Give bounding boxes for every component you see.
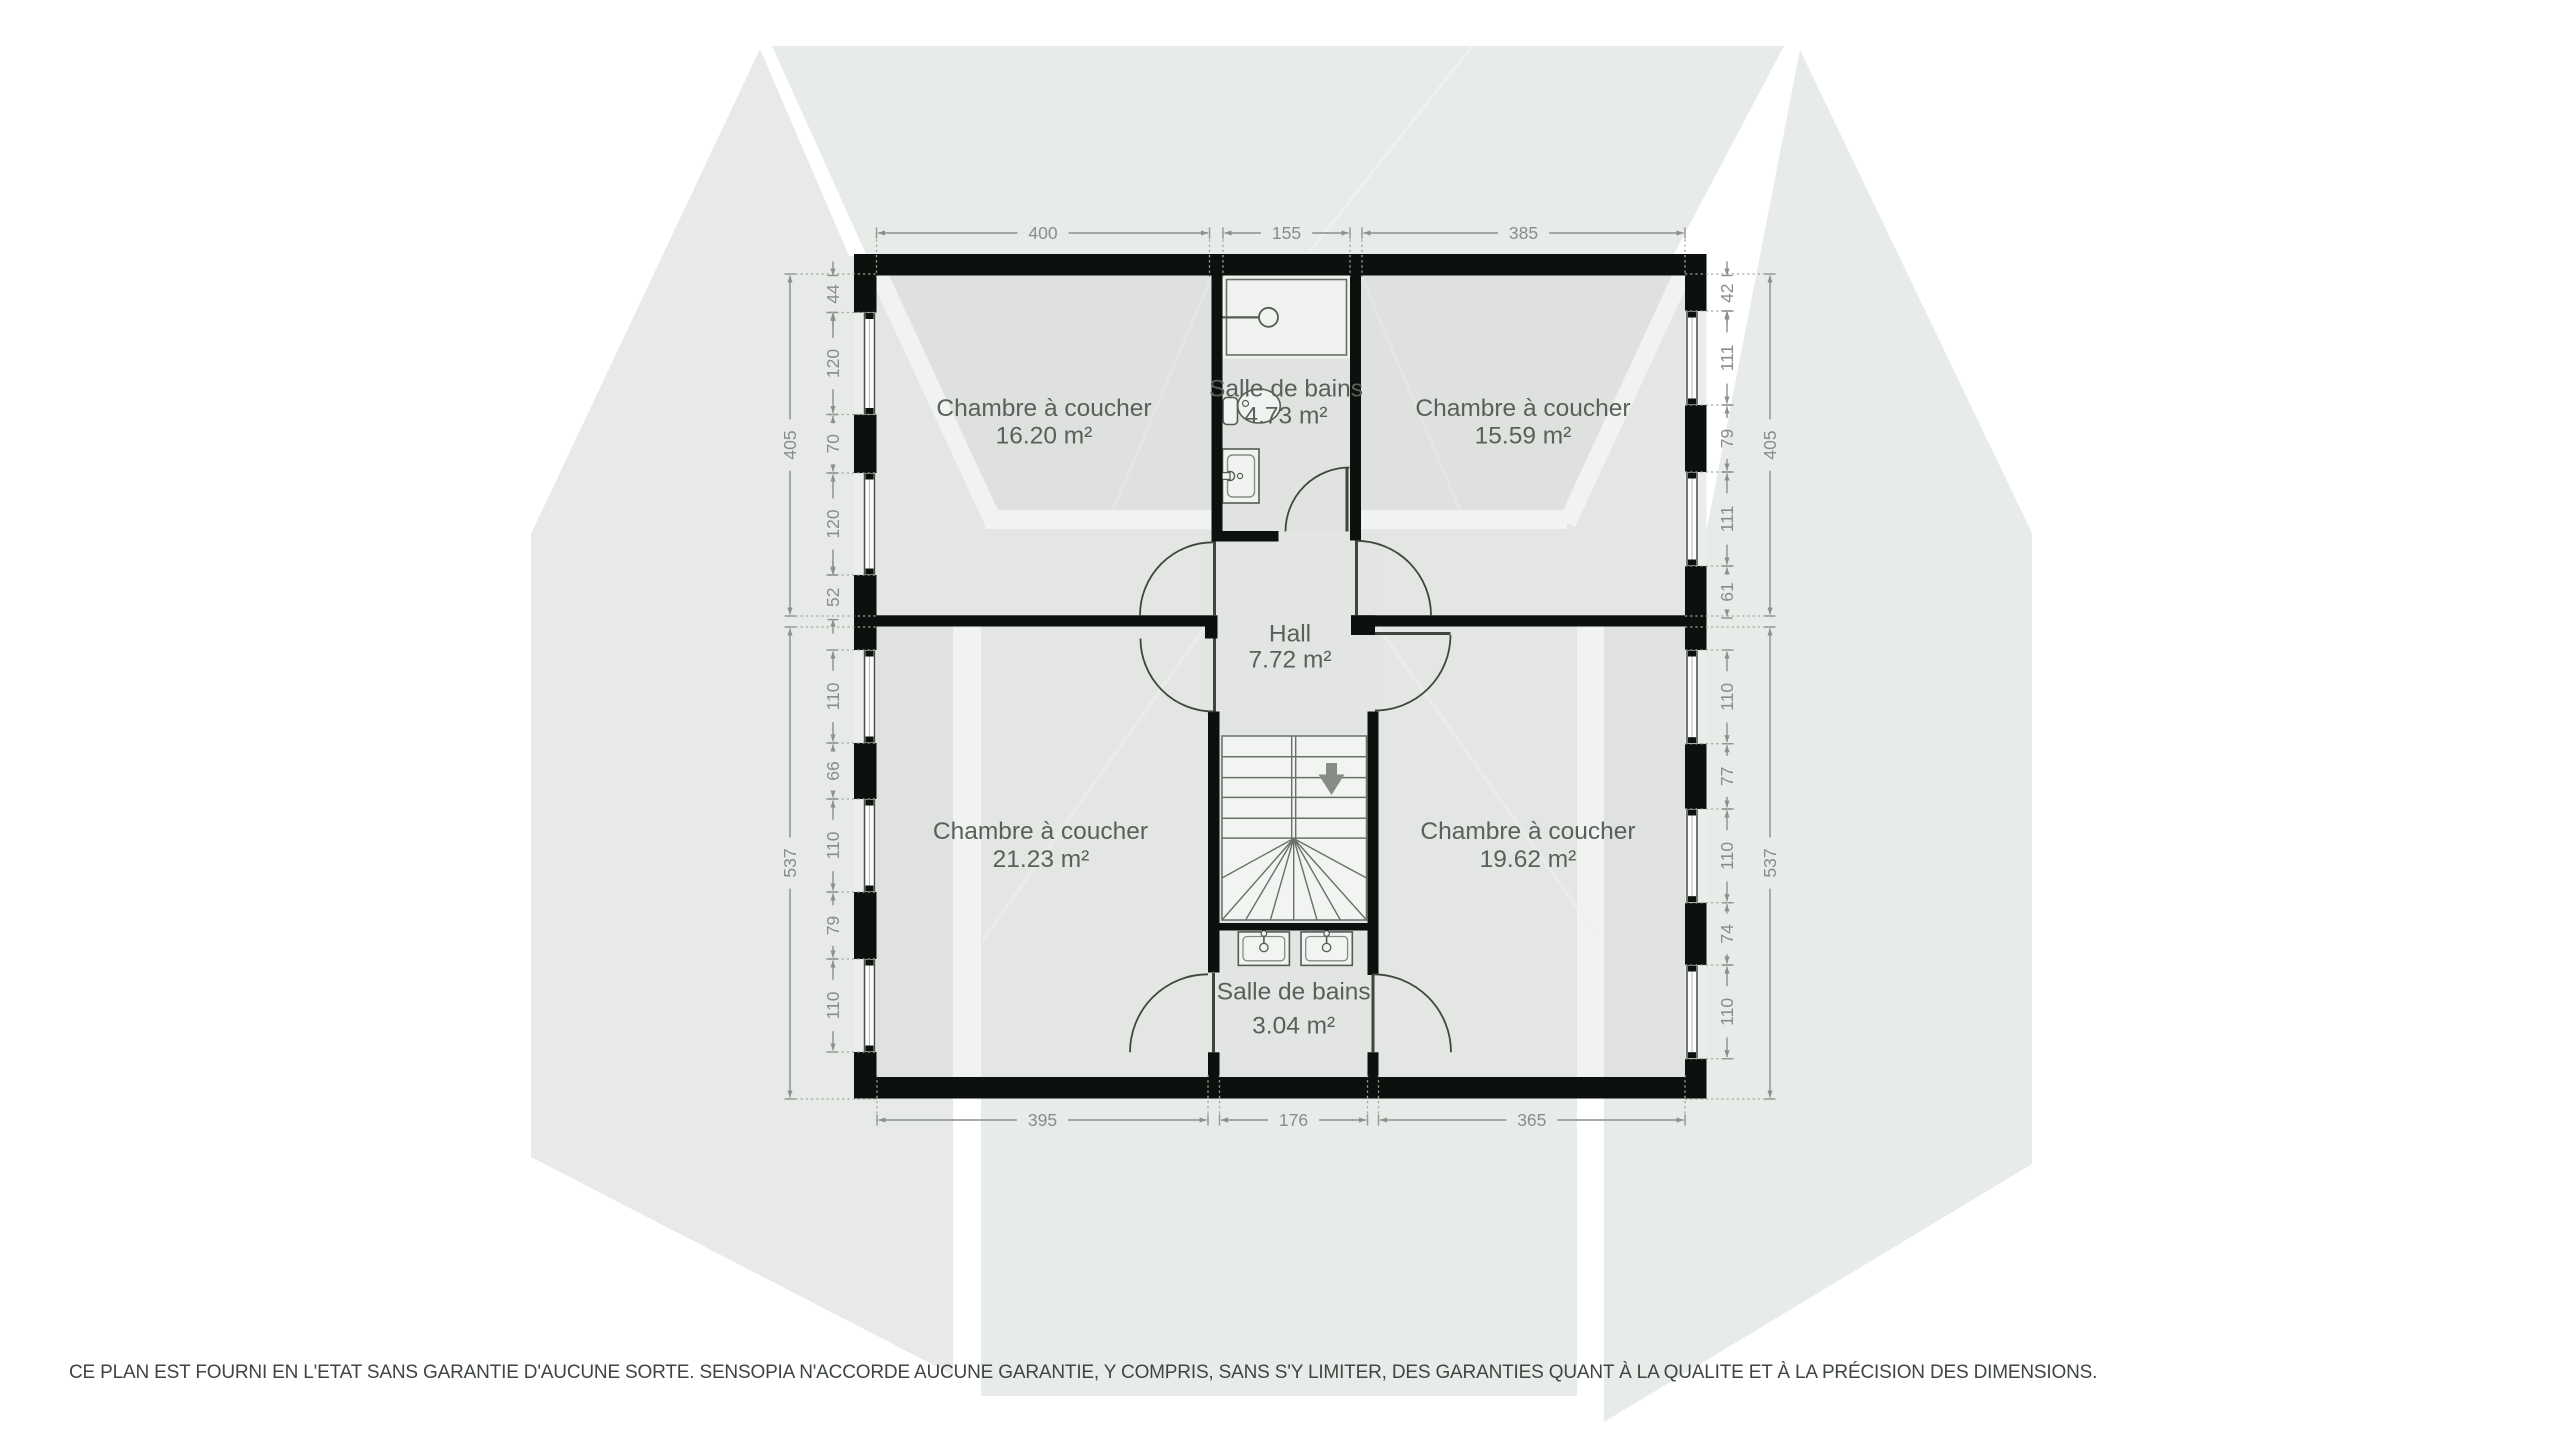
svg-text:Salle de bains: Salle de bains xyxy=(1217,979,1371,1006)
svg-text:110: 110 xyxy=(823,831,843,859)
svg-text:176: 176 xyxy=(1279,1110,1308,1130)
svg-text:155: 155 xyxy=(1272,223,1301,243)
svg-text:405: 405 xyxy=(780,430,800,459)
svg-text:79: 79 xyxy=(1717,429,1737,448)
svg-text:110: 110 xyxy=(823,991,843,1019)
svg-text:537: 537 xyxy=(780,848,800,877)
svg-text:365: 365 xyxy=(1517,1110,1546,1130)
svg-text:120: 120 xyxy=(823,349,843,378)
svg-text:44: 44 xyxy=(823,284,843,304)
svg-text:Chambre à coucher: Chambre à coucher xyxy=(933,818,1148,845)
svg-text:110: 110 xyxy=(823,682,843,710)
svg-text:4.73 m²: 4.73 m² xyxy=(1244,403,1327,430)
svg-text:19.62 m²: 19.62 m² xyxy=(1480,846,1577,873)
svg-text:Chambre à coucher: Chambre à coucher xyxy=(1415,395,1630,422)
svg-text:7.72 m²: 7.72 m² xyxy=(1248,647,1331,674)
svg-text:110: 110 xyxy=(1717,842,1737,870)
svg-text:42: 42 xyxy=(1717,283,1737,302)
svg-text:CE PLAN EST FOURNI EN L'ETAT S: CE PLAN EST FOURNI EN L'ETAT SANS GARANT… xyxy=(69,1362,2097,1383)
svg-text:111: 111 xyxy=(1717,345,1737,372)
svg-text:79: 79 xyxy=(823,916,843,935)
svg-text:52: 52 xyxy=(823,588,843,607)
svg-text:61: 61 xyxy=(1717,582,1737,601)
svg-text:395: 395 xyxy=(1028,1110,1057,1130)
svg-text:110: 110 xyxy=(1717,683,1737,711)
svg-text:3.04 m²: 3.04 m² xyxy=(1252,1013,1335,1040)
svg-text:110: 110 xyxy=(1717,998,1737,1026)
svg-text:77: 77 xyxy=(1717,767,1737,786)
svg-text:Salle de bains: Salle de bains xyxy=(1209,376,1363,403)
svg-text:537: 537 xyxy=(1760,848,1780,877)
svg-text:405: 405 xyxy=(1760,430,1780,459)
svg-text:66: 66 xyxy=(823,761,843,780)
svg-text:Hall: Hall xyxy=(1269,621,1311,648)
svg-text:385: 385 xyxy=(1509,223,1538,243)
svg-text:111: 111 xyxy=(1717,506,1737,533)
svg-text:Chambre à coucher: Chambre à coucher xyxy=(936,395,1151,422)
svg-text:120: 120 xyxy=(823,509,843,538)
svg-text:16.20 m²: 16.20 m² xyxy=(996,423,1093,450)
svg-text:74: 74 xyxy=(1717,924,1737,944)
svg-text:Chambre à coucher: Chambre à coucher xyxy=(1420,818,1635,845)
svg-text:70: 70 xyxy=(823,434,843,454)
svg-text:400: 400 xyxy=(1028,223,1057,243)
svg-text:21.23 m²: 21.23 m² xyxy=(993,846,1090,873)
svg-text:15.59 m²: 15.59 m² xyxy=(1475,423,1572,450)
